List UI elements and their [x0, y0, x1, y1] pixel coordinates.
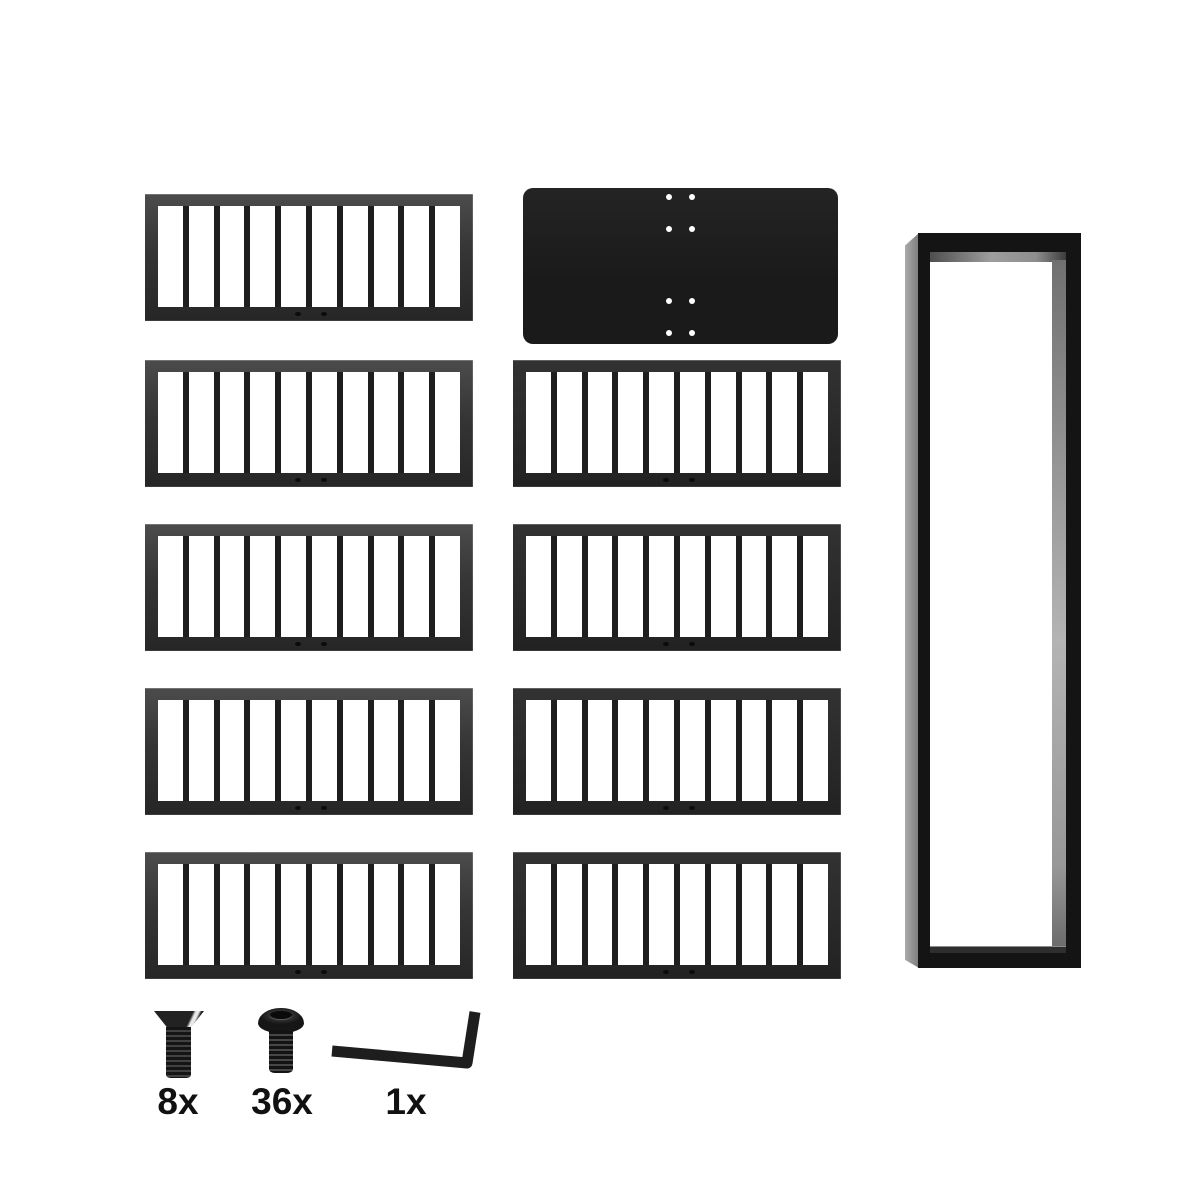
panel-slot: [557, 864, 582, 965]
panel-grid: [158, 206, 460, 307]
panel-slot: [158, 864, 183, 965]
panel-slot: [557, 700, 582, 801]
plate-hole: [666, 298, 672, 304]
panel-slot: [711, 700, 736, 801]
grid-panel: [145, 194, 473, 321]
panel-bottom-hole: [295, 312, 301, 316]
panel-slot: [158, 700, 183, 801]
panel-slot: [281, 206, 306, 307]
panel-bottom-hole: [321, 312, 327, 316]
panel-slot: [772, 372, 797, 473]
panel-grid: [158, 536, 460, 637]
panel-slot: [526, 372, 551, 473]
panel-slot: [250, 864, 275, 965]
panel-bottom-hole: [295, 970, 301, 974]
panel-slot: [281, 700, 306, 801]
plate-hole: [666, 194, 672, 200]
panel-slot: [803, 372, 828, 473]
assembly-parts-overview: 8x 36x 1x: [0, 0, 1200, 1200]
panel-slot: [220, 372, 245, 473]
panel-slot: [374, 372, 399, 473]
panel-slot: [343, 864, 368, 965]
panel-slot: [189, 372, 214, 473]
panel-slot: [711, 536, 736, 637]
leg-frame-inner-top-face: [930, 252, 1066, 262]
panel-bottom-hole: [321, 970, 327, 974]
panel-slot: [526, 700, 551, 801]
panel-slot: [742, 372, 767, 473]
panel-slot: [772, 536, 797, 637]
button-head-screw-icon: [258, 1008, 304, 1033]
panel-slot: [680, 700, 705, 801]
panel-slot: [189, 536, 214, 637]
panel-slot: [711, 864, 736, 965]
panel-slot: [343, 536, 368, 637]
plate-hole: [689, 226, 695, 232]
panel-slot: [220, 536, 245, 637]
panel-slot: [649, 700, 674, 801]
panel-slot: [281, 864, 306, 965]
panel-bottom-hole: [663, 478, 669, 482]
panel-slot: [404, 700, 429, 801]
panel-bottom-hole: [321, 806, 327, 810]
panel-slot: [435, 700, 460, 801]
panel-bottom-hole: [689, 642, 695, 646]
panel-slot: [526, 864, 551, 965]
panel-slot: [404, 864, 429, 965]
panel-slot: [742, 536, 767, 637]
panel-slot: [312, 864, 337, 965]
panel-grid: [158, 700, 460, 801]
panel-grid: [526, 864, 828, 965]
grid-panel: [513, 852, 841, 979]
grid-panel: [145, 852, 473, 979]
panel-slot: [557, 536, 582, 637]
plate-hole: [689, 330, 695, 336]
panel-slot: [250, 700, 275, 801]
panel-slot: [250, 372, 275, 473]
panel-slot: [189, 864, 214, 965]
panel-slot: [649, 864, 674, 965]
panel-slot: [649, 372, 674, 473]
hex-key-icon: [328, 1005, 493, 1080]
panel-slot: [374, 864, 399, 965]
countersunk-screw-shaft: [166, 1027, 191, 1078]
leg-frame-inner-right-face: [1052, 260, 1066, 949]
panel-grid: [158, 864, 460, 965]
plate-hole: [666, 330, 672, 336]
panel-slot: [680, 372, 705, 473]
panel-bottom-hole: [321, 642, 327, 646]
panel-slot: [404, 536, 429, 637]
grid-panel: [513, 360, 841, 487]
panel-slot: [588, 536, 613, 637]
grid-panel: [145, 360, 473, 487]
panel-slot: [618, 372, 643, 473]
panel-slot: [772, 864, 797, 965]
panel-slot: [343, 700, 368, 801]
panel-slot: [312, 206, 337, 307]
panel-bottom-hole: [321, 478, 327, 482]
plate-hole: [689, 298, 695, 304]
countersunk-screw-icon: [154, 1011, 204, 1028]
panel-bottom-hole: [663, 642, 669, 646]
panel-slot: [374, 536, 399, 637]
panel-slot: [343, 372, 368, 473]
panel-slot: [557, 372, 582, 473]
panel-slot: [312, 700, 337, 801]
panel-slot: [220, 864, 245, 965]
panel-slot: [189, 700, 214, 801]
panel-slot: [742, 700, 767, 801]
panel-slot: [803, 536, 828, 637]
panel-slot: [312, 372, 337, 473]
panel-slot: [803, 864, 828, 965]
plate-hole: [666, 226, 672, 232]
panel-slot: [772, 700, 797, 801]
panel-slot: [250, 536, 275, 637]
panel-slot: [435, 206, 460, 307]
panel-grid: [526, 536, 828, 637]
panel-slot: [435, 536, 460, 637]
panel-bottom-hole: [295, 478, 301, 482]
quantity-label: 36x: [236, 1083, 328, 1121]
panel-slot: [435, 372, 460, 473]
panel-bottom-hole: [295, 806, 301, 810]
leg-frame-opening: [930, 252, 1066, 953]
leg-frame-front: [918, 233, 1081, 968]
panel-grid: [526, 372, 828, 473]
panel-bottom-hole: [295, 642, 301, 646]
panel-bottom-hole: [689, 970, 695, 974]
quantity-label: 1x: [372, 1083, 440, 1121]
panel-bottom-hole: [663, 806, 669, 810]
grid-panel: [145, 688, 473, 815]
panel-slot: [711, 372, 736, 473]
panel-slot: [158, 536, 183, 637]
quantity-label: 8x: [146, 1083, 210, 1121]
panel-slot: [404, 372, 429, 473]
panel-slot: [680, 536, 705, 637]
panel-slot: [435, 864, 460, 965]
panel-bottom-hole: [689, 478, 695, 482]
panel-slot: [312, 536, 337, 637]
button-head-screw-shaft: [269, 1031, 293, 1073]
panel-slot: [803, 700, 828, 801]
panel-slot: [374, 700, 399, 801]
leg-frame-inner-bottom-face: [930, 947, 1066, 953]
panel-slot: [588, 864, 613, 965]
panel-slot: [588, 700, 613, 801]
panel-slot: [281, 536, 306, 637]
grid-panel: [513, 688, 841, 815]
plate-hole: [689, 194, 695, 200]
panel-slot: [250, 206, 275, 307]
panel-slot: [220, 700, 245, 801]
panel-grid: [526, 700, 828, 801]
panel-slot: [281, 372, 306, 473]
panel-slot: [649, 536, 674, 637]
panel-slot: [189, 206, 214, 307]
panel-bottom-hole: [689, 806, 695, 810]
leg-frame-side-face: [905, 233, 919, 968]
panel-grid: [158, 372, 460, 473]
panel-slot: [742, 864, 767, 965]
panel-slot: [220, 206, 245, 307]
leg-frame: [905, 233, 1081, 968]
panel-slot: [158, 206, 183, 307]
panel-slot: [374, 206, 399, 307]
grid-panel: [145, 524, 473, 651]
panel-slot: [618, 864, 643, 965]
panel-slot: [618, 700, 643, 801]
panel-slot: [588, 372, 613, 473]
mounting-plate: [523, 188, 838, 344]
panel-slot: [526, 536, 551, 637]
panel-slot: [343, 206, 368, 307]
panel-slot: [404, 206, 429, 307]
grid-panel: [513, 524, 841, 651]
panel-slot: [680, 864, 705, 965]
panel-slot: [158, 372, 183, 473]
panel-slot: [618, 536, 643, 637]
panel-bottom-hole: [663, 970, 669, 974]
